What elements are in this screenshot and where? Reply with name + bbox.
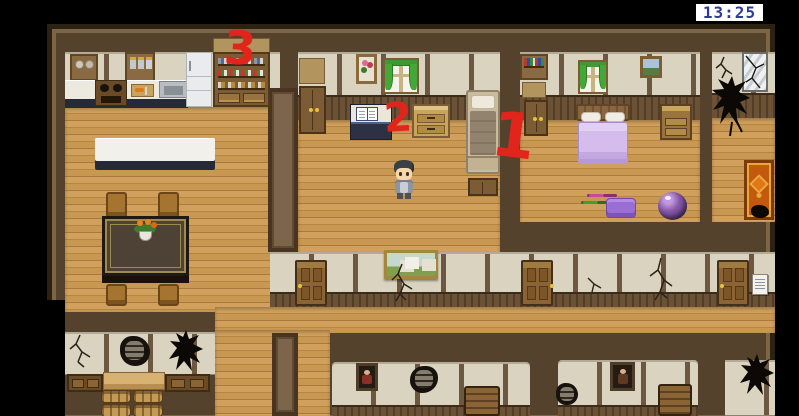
chair[interactable] (106, 192, 127, 218)
refrigerator[interactable] (186, 52, 212, 107)
book-spine (367, 108, 368, 120)
chair[interactable] (106, 284, 127, 306)
window[interactable] (383, 58, 419, 94)
fridge-door-line (187, 90, 211, 91)
book-text-lines (359, 111, 365, 112)
carpet-hole (751, 205, 769, 218)
green-dumbbell (583, 201, 597, 204)
drawer (243, 93, 265, 103)
exercise-ball[interactable] (658, 192, 687, 220)
floor-hole (712, 76, 752, 138)
carrot (135, 88, 144, 92)
sink-basin (164, 86, 183, 95)
player-character[interactable] (393, 160, 415, 200)
annotation-marker-3: 3 (223, 27, 257, 70)
flower-pot[interactable] (133, 219, 157, 243)
character-shirt-front (400, 182, 408, 193)
burner (113, 84, 122, 92)
clock-display: 13:25 (694, 2, 765, 23)
ball-shine (665, 196, 671, 200)
chair[interactable] (158, 192, 179, 218)
pillow (605, 112, 625, 122)
barrel[interactable] (133, 404, 163, 416)
annotation-marker-1: 1 (489, 106, 539, 167)
bedside-cabinet[interactable] (468, 178, 498, 196)
pillar-wall (268, 88, 298, 252)
flowers (137, 220, 143, 226)
cabinet-panel (190, 379, 204, 388)
portrait-body (362, 375, 372, 384)
cabinet-panel (171, 379, 185, 388)
pink-dumbbell (589, 194, 603, 197)
pot-shelf[interactable] (70, 54, 98, 81)
burner (100, 84, 109, 92)
ornate-carpet[interactable] (744, 160, 774, 220)
dish-row (218, 82, 265, 90)
open-book (356, 107, 378, 121)
upper-shelf[interactable] (299, 58, 325, 84)
mountain-picture[interactable] (640, 56, 662, 78)
purple-bed[interactable] (576, 104, 630, 166)
pillow (581, 112, 601, 122)
dresser[interactable] (412, 104, 450, 138)
table-skirt (102, 276, 189, 283)
wall-hole (738, 354, 775, 396)
purple-blanket (578, 122, 628, 164)
jar (138, 57, 144, 69)
flower-picture[interactable] (356, 54, 377, 84)
counter[interactable] (103, 372, 165, 390)
window[interactable] (578, 60, 608, 94)
portrait-body (618, 374, 628, 384)
drawer (417, 125, 445, 134)
low-cabinet[interactable] (67, 374, 103, 392)
curtain-right (599, 65, 606, 89)
curtain-right (409, 64, 417, 90)
flower-art (362, 60, 368, 66)
wall-crack (388, 262, 416, 302)
pot (75, 60, 84, 69)
bookshelf[interactable] (520, 54, 548, 80)
curtain-left (580, 65, 587, 89)
bricks (560, 387, 574, 401)
jar (130, 57, 136, 69)
wood-pile[interactable] (658, 384, 692, 416)
door[interactable] (717, 260, 749, 306)
game-screen: 3 2 1 13:25 (0, 0, 799, 416)
wood-pile[interactable] (464, 386, 500, 416)
jar (146, 57, 152, 69)
wall-crack (584, 276, 604, 296)
notice-text-lines (755, 279, 765, 280)
cabinet-panel (72, 379, 84, 388)
pot (85, 60, 94, 69)
bricks (415, 370, 433, 388)
drawer (218, 93, 240, 103)
pot (139, 231, 152, 241)
curtain-left (385, 64, 393, 90)
yoga-mat[interactable] (606, 198, 636, 218)
door[interactable] (295, 260, 327, 306)
desk[interactable] (660, 104, 692, 140)
fridge-door-line (187, 76, 211, 77)
side-cabinet[interactable] (522, 82, 546, 98)
barrel[interactable] (101, 390, 131, 403)
character-eyes (399, 172, 402, 176)
drawer-handles (427, 117, 435, 119)
ruined-room-wainscot (332, 405, 530, 416)
portrait-painting[interactable] (610, 362, 635, 391)
stove[interactable] (95, 80, 127, 106)
brick-hole (120, 336, 150, 366)
books (524, 58, 544, 68)
fridge-handle (189, 61, 191, 71)
brick-hole (556, 383, 578, 405)
carpet-medallion (749, 174, 769, 194)
notice-paper[interactable] (752, 274, 768, 295)
character-feet (397, 193, 403, 199)
low-cabinet[interactable] (165, 374, 210, 392)
knife (145, 87, 147, 95)
sink[interactable] (159, 81, 187, 98)
jar-shelf[interactable] (125, 52, 155, 83)
corridor-wall (272, 333, 298, 416)
dining-table[interactable] (102, 216, 189, 276)
bricks (125, 341, 144, 360)
wardrobe[interactable] (299, 86, 326, 134)
left-wall-end (47, 300, 65, 416)
chair[interactable] (158, 284, 179, 306)
drawer (665, 128, 687, 136)
oven-slot (101, 96, 121, 103)
cabinet-split (482, 182, 483, 194)
white-counter-table[interactable] (95, 138, 215, 170)
barrel[interactable] (133, 390, 163, 403)
wall-crack (68, 334, 94, 368)
cutting-board[interactable] (131, 84, 154, 97)
wall-crack (645, 256, 677, 302)
drawer (665, 118, 687, 126)
door[interactable] (521, 260, 553, 306)
wall-hole (168, 330, 204, 372)
annotation-marker-2: 2 (383, 99, 413, 136)
portrait-painting[interactable] (356, 363, 378, 391)
pillow (471, 95, 495, 109)
dumbbells[interactable] (583, 193, 605, 209)
barrel[interactable] (101, 404, 131, 416)
cabinet-panel (87, 379, 99, 388)
